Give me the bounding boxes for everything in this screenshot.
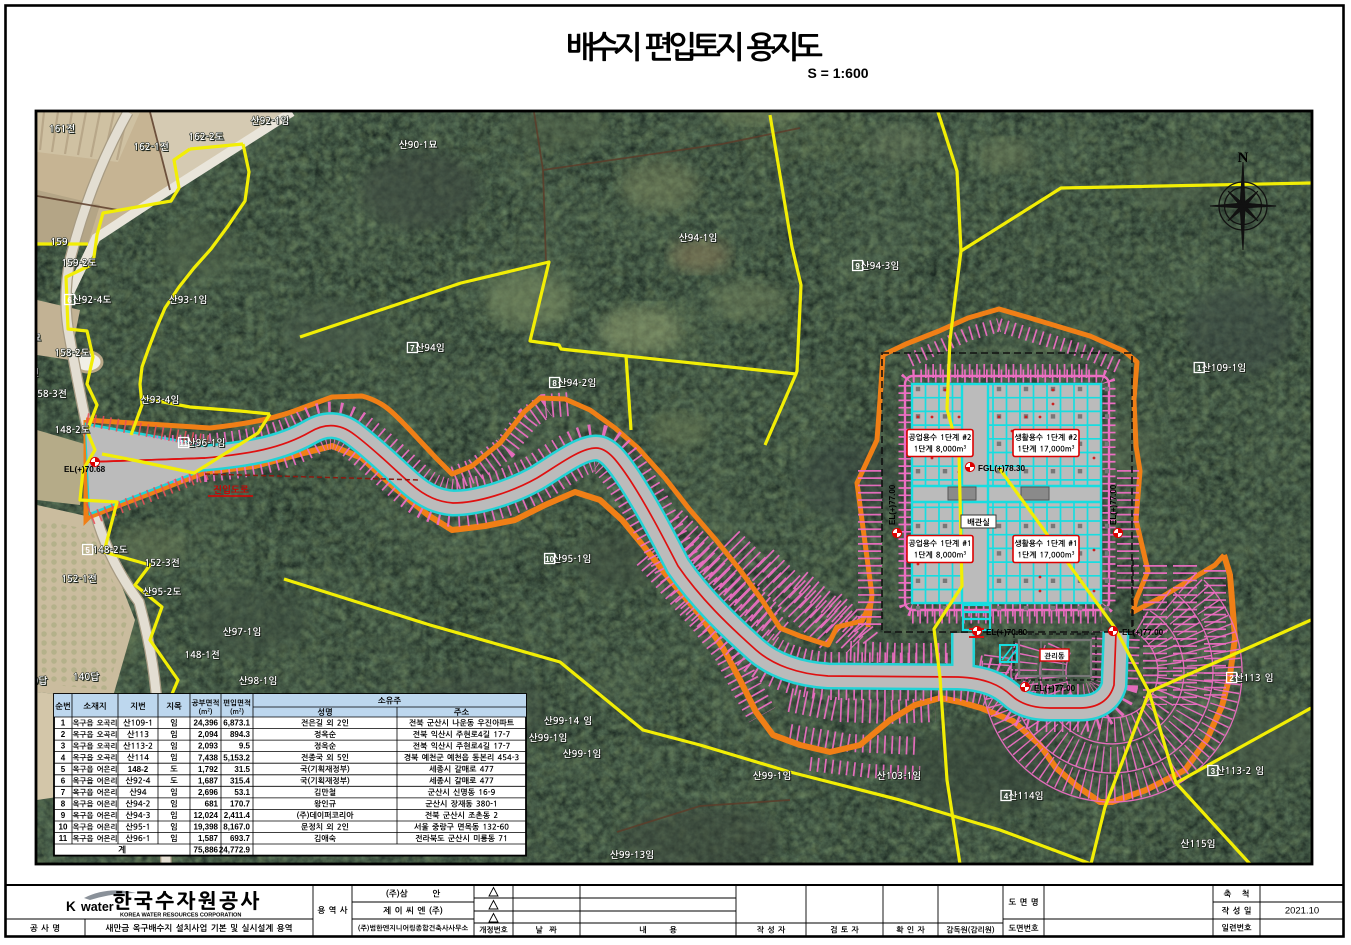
svg-text:K: K (66, 899, 76, 914)
svg-text:2,093: 2,093 (198, 742, 219, 751)
svg-text:315.4: 315.4 (230, 776, 251, 785)
svg-text:3: 3 (1211, 767, 1216, 776)
svg-text:10: 10 (59, 823, 68, 832)
svg-text:24,396: 24,396 (194, 719, 219, 728)
svg-text:170.7: 170.7 (230, 799, 251, 808)
svg-text:24,772.9: 24,772.9 (219, 846, 251, 855)
svg-text:12,024: 12,024 (194, 811, 219, 820)
svg-text:1: 1 (1197, 364, 1202, 373)
svg-text:water: water (80, 900, 114, 914)
svg-text:7,438: 7,438 (198, 753, 219, 762)
svg-text:7: 7 (61, 788, 66, 797)
svg-text:53.1: 53.1 (234, 788, 250, 797)
svg-text:6,873.1: 6,873.1 (223, 719, 250, 728)
svg-text:1,687: 1,687 (198, 776, 219, 785)
svg-text:75,886: 75,886 (194, 846, 219, 855)
svg-text:4: 4 (61, 753, 66, 762)
svg-text:11: 11 (179, 439, 188, 448)
svg-text:EL(+)70.68: EL(+)70.68 (64, 465, 106, 474)
svg-text:4: 4 (1004, 792, 1009, 801)
svg-text:1,792: 1,792 (198, 765, 219, 774)
svg-text:EL(+)70.80: EL(+)70.80 (986, 628, 1028, 637)
svg-text:6: 6 (67, 296, 72, 305)
svg-text:5,153.2: 5,153.2 (223, 753, 250, 762)
svg-text:8: 8 (61, 799, 66, 808)
svg-text:2,411.4: 2,411.4 (224, 811, 251, 820)
svg-text:8,167.0: 8,167.0 (223, 823, 250, 832)
svg-text:8: 8 (552, 379, 557, 388)
svg-text:EL(+)77.00: EL(+)77.00 (1034, 684, 1076, 693)
svg-text:5: 5 (85, 546, 90, 555)
svg-text:2,696: 2,696 (198, 788, 219, 797)
svg-text:KOREA WATER RESOURCES CORPORAT: KOREA WATER RESOURCES CORPORATION (120, 913, 241, 919)
svg-text:2: 2 (61, 730, 66, 739)
svg-text:3: 3 (61, 742, 66, 751)
svg-text:894.3: 894.3 (230, 730, 251, 739)
svg-text:19,398: 19,398 (194, 823, 219, 832)
svg-text:693.7: 693.7 (230, 834, 251, 843)
svg-text:148-2: 148-2 (128, 765, 149, 774)
svg-text:FGL(+)78.30: FGL(+)78.30 (978, 464, 1026, 473)
svg-text:1: 1 (61, 719, 66, 728)
svg-text:1,587: 1,587 (198, 834, 219, 843)
svg-text:EL(+)77.00: EL(+)77.00 (888, 484, 897, 525)
svg-text:11: 11 (59, 834, 68, 843)
svg-text:9: 9 (61, 811, 66, 820)
svg-text:2,094: 2,094 (198, 730, 219, 739)
svg-text:5: 5 (61, 765, 66, 774)
svg-text:31.5: 31.5 (234, 765, 250, 774)
svg-text:2: 2 (1229, 674, 1234, 683)
svg-text:9: 9 (855, 262, 860, 271)
svg-text:10: 10 (545, 555, 554, 564)
svg-text:N: N (1238, 150, 1249, 166)
svg-text:2021.10: 2021.10 (1285, 906, 1319, 917)
svg-text:EL(+)77.00: EL(+)77.00 (1109, 484, 1118, 525)
svg-text:7: 7 (410, 344, 415, 353)
svg-text:681: 681 (205, 799, 219, 808)
svg-text:S = 1:600: S = 1:600 (807, 65, 868, 81)
svg-text:9.5: 9.5 (239, 742, 251, 751)
svg-text:6: 6 (61, 776, 66, 785)
svg-text:EL(+)77.00: EL(+)77.00 (1122, 628, 1164, 637)
